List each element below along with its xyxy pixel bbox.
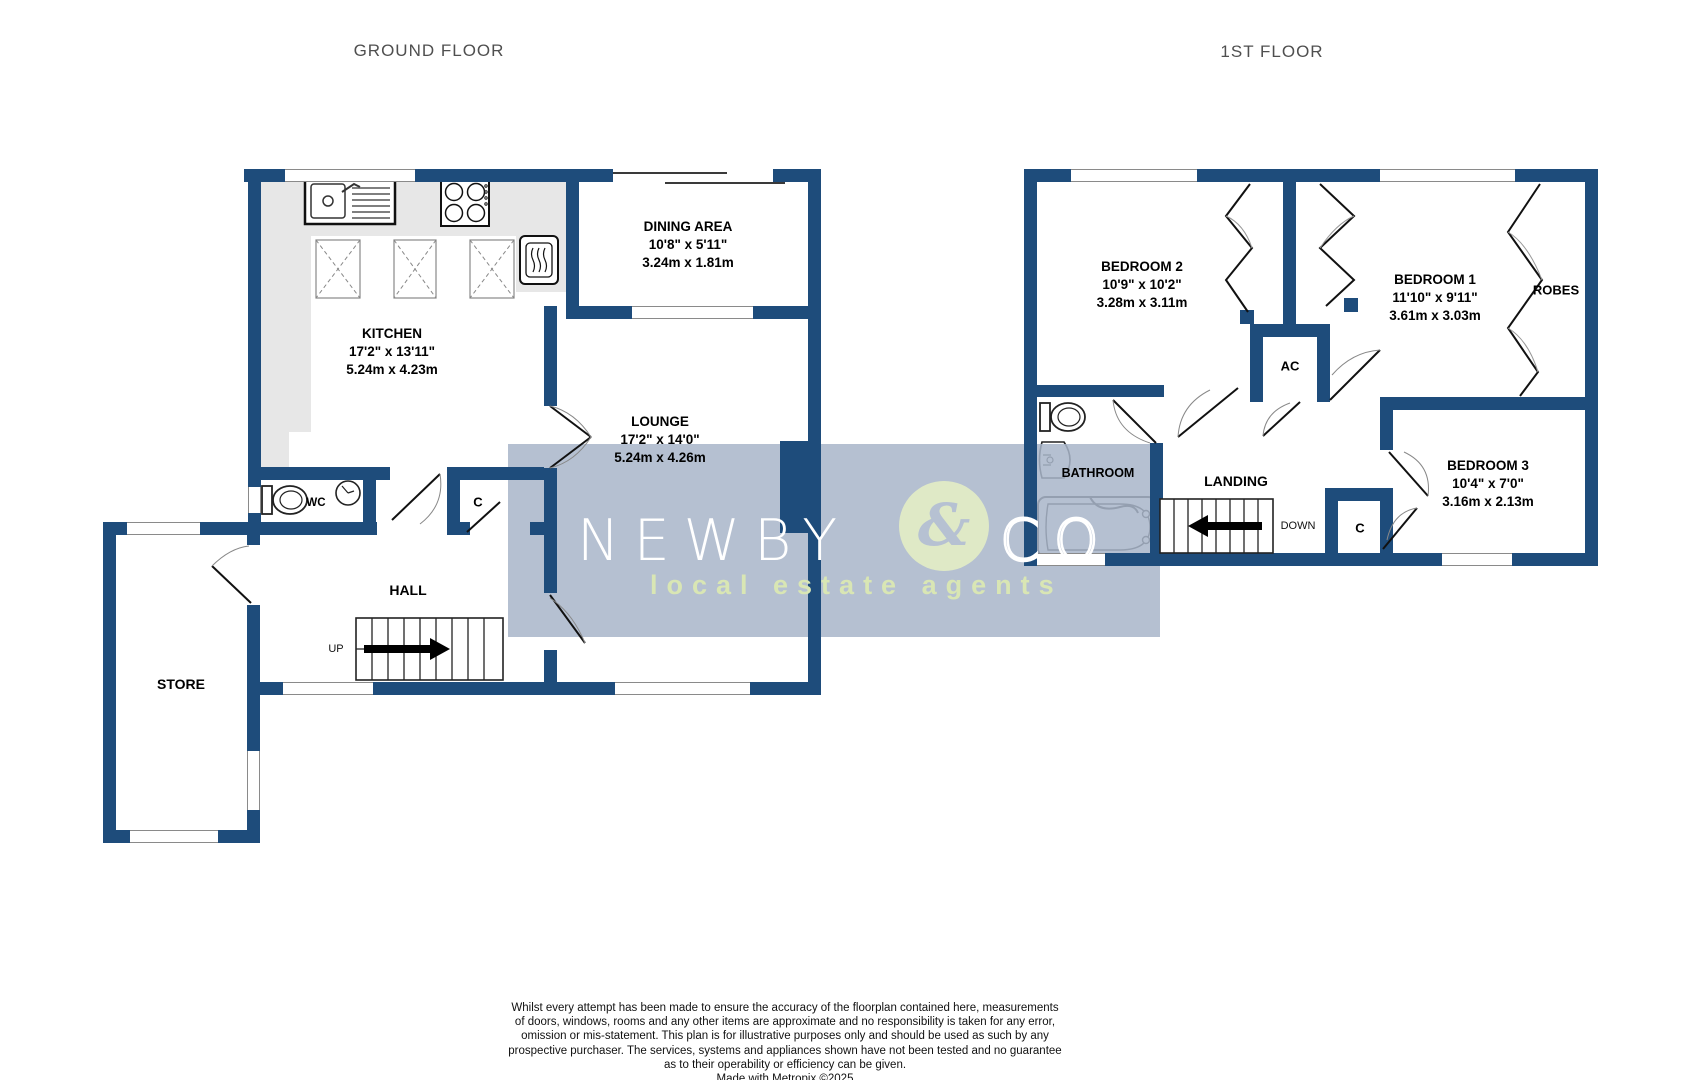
wall (1250, 324, 1263, 402)
window (127, 522, 200, 535)
dining-opening-line (665, 182, 785, 184)
stairs-up-label: UP (328, 643, 343, 655)
kitchen-counter-left (261, 236, 311, 432)
room-dim-imperial: 17'2" x 14'0" (614, 431, 706, 449)
watermark-ampersand: & (918, 491, 970, 559)
kitchen-counter-left-lower (261, 432, 289, 467)
room-label-wc: WC (306, 497, 325, 509)
wall (544, 468, 557, 593)
window (248, 487, 261, 513)
room-label-landing: LANDING (1204, 473, 1268, 489)
room-dim-metric: 5.24m x 4.26m (614, 449, 706, 467)
room-label-cupboard-first: C (1355, 521, 1364, 536)
kitchen-unit-cross (316, 240, 514, 298)
wall (1283, 169, 1296, 324)
room-label-ac: AC (1281, 359, 1300, 374)
room-label-hall: HALL (389, 582, 426, 598)
room-label-bedroom3: BEDROOM 3 10'4" x 7'0" 3.16m x 2.13m (1442, 457, 1534, 511)
internal-opening (632, 306, 753, 319)
watermark-brand-word2: CO (1000, 508, 1113, 574)
wall (200, 522, 377, 535)
wall (544, 650, 557, 695)
ground-floor-title: GROUND FLOOR (354, 41, 505, 61)
wc-toilet (262, 486, 307, 514)
wardrobe-zigzag (1226, 184, 1542, 396)
window (285, 169, 415, 182)
room-label-bedroom1: BEDROOM 1 11'10" x 9'11" 3.61m x 3.03m (1389, 271, 1481, 325)
wc-basin (336, 481, 360, 505)
room-name: KITCHEN (346, 325, 438, 343)
room-dim-imperial: 10'4" x 7'0" (1442, 475, 1534, 493)
disclaimer-line: as to their operability or efficiency ca… (435, 1058, 1135, 1072)
wardrobe-fold-arcs (1226, 216, 1542, 372)
wall (750, 682, 821, 695)
room-name: BEDROOM 1 (1389, 271, 1481, 289)
room-label-robes: ROBES (1533, 283, 1579, 298)
watermark-tagline: local estate agents (650, 570, 1063, 601)
wall (1150, 443, 1163, 553)
stairs-down-label: DOWN (1281, 520, 1316, 532)
wall (1325, 488, 1338, 553)
disclaimer: Whilst every attempt has been made to en… (435, 1001, 1135, 1080)
wall (1317, 324, 1330, 402)
room-label-store: STORE (157, 676, 205, 692)
room-dim-metric: 3.16m x 2.13m (1442, 493, 1534, 511)
room-dim-metric: 5.24m x 4.23m (346, 361, 438, 379)
room-name: LOUNGE (614, 413, 706, 431)
floorplan-page: GROUND FLOOR 1ST FLOOR (0, 0, 1700, 1080)
wall (1105, 553, 1442, 566)
room-name: DINING AREA (642, 218, 734, 236)
watermark-brand-word1: NEWBY (577, 508, 851, 574)
wall (247, 535, 260, 545)
room-dim-imperial: 10'9" x 10'2" (1097, 276, 1188, 294)
kitchen-counter-right (516, 236, 566, 292)
room-label-bathroom: BATHROOM (1062, 466, 1135, 480)
wall (447, 522, 470, 535)
room-label-kitchen: KITCHEN 17'2" x 13'11" 5.24m x 4.23m (346, 325, 438, 379)
wall (1380, 397, 1393, 450)
wall (566, 169, 579, 319)
wall (247, 605, 260, 751)
wall (1240, 310, 1254, 324)
wall (447, 467, 544, 480)
room-label-cupboard-ground: C (473, 495, 482, 510)
room-label-lounge: LOUNGE 17'2" x 14'0" 5.24m x 4.26m (614, 413, 706, 467)
disclaimer-line: Whilst every attempt has been made to en… (435, 1001, 1135, 1015)
room-label-dining: DINING AREA 10'8" x 5'11" 3.24m x 1.81m (642, 218, 734, 272)
wall (566, 306, 632, 319)
disclaimer-line: prospective purchaser. The services, sys… (435, 1044, 1135, 1058)
dining-opening-line (613, 172, 727, 174)
wall (248, 169, 261, 487)
wall (1344, 298, 1358, 312)
kitchen-unit (316, 240, 514, 298)
room-name: BEDROOM 2 (1097, 258, 1188, 276)
room-dim-metric: 3.61m x 3.03m (1389, 307, 1481, 325)
wall (260, 682, 283, 695)
wall (103, 522, 116, 843)
room-dim-metric: 3.28m x 3.11m (1097, 294, 1188, 312)
window (1380, 169, 1515, 182)
room-dim-imperial: 11'10" x 9'11" (1389, 289, 1481, 307)
wall (103, 830, 130, 843)
wall (247, 810, 260, 843)
room-dim-imperial: 10'8" x 5'11" (642, 236, 734, 254)
wall (373, 682, 615, 695)
stairs-up (356, 618, 503, 680)
window (1071, 169, 1197, 182)
wall (1024, 169, 1037, 566)
wall (415, 169, 613, 182)
room-dim-imperial: 17'2" x 13'11" (346, 343, 438, 361)
window (130, 830, 218, 843)
wall (544, 306, 557, 406)
disclaimer-credit: Made with Metropix ©2025 (435, 1072, 1135, 1080)
bathroom-toilet (1040, 403, 1085, 431)
room-dim-metric: 3.24m x 1.81m (642, 254, 734, 272)
disclaimer-line: of doors, windows, rooms and any other i… (435, 1015, 1135, 1029)
window (615, 682, 750, 695)
wall (1585, 169, 1598, 566)
wall (753, 306, 821, 319)
wall (1393, 397, 1585, 410)
wall (808, 169, 821, 695)
wall (530, 522, 544, 535)
disclaimer-line: omission or mis-statement. This plan is … (435, 1029, 1135, 1043)
watermark-ampersand-badge: & (899, 481, 989, 571)
wall (1512, 553, 1585, 566)
room-name: BEDROOM 3 (1442, 457, 1534, 475)
wall (1037, 385, 1164, 397)
window (1442, 553, 1512, 566)
window (283, 682, 373, 695)
first-floor-title: 1ST FLOOR (1220, 42, 1323, 62)
kitchen-counter-top (261, 182, 566, 236)
stairs-down (1160, 499, 1273, 553)
window (247, 751, 260, 810)
room-label-bedroom2: BEDROOM 2 10'9" x 10'2" 3.28m x 3.11m (1097, 258, 1188, 312)
